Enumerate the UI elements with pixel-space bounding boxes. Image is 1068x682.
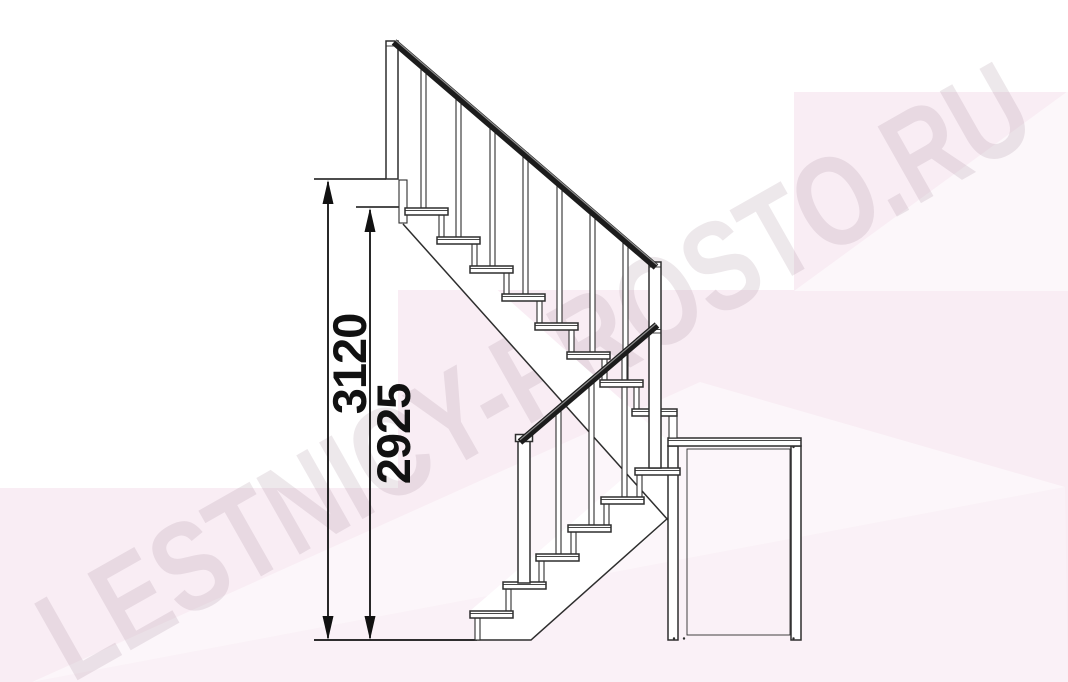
tread: [635, 468, 680, 475]
staircase: [386, 40, 801, 640]
arrow-up-icon: [323, 180, 334, 204]
riser-support: [637, 475, 642, 497]
dimension-2925: 2925: [365, 208, 421, 640]
tread: [567, 352, 610, 359]
staircase-drawing: 3120 2925: [0, 0, 1068, 682]
riser-support: [569, 330, 574, 352]
post-body: [386, 41, 398, 179]
tread: [437, 237, 480, 244]
arrow-down-icon: [323, 616, 334, 640]
box-corner-dot: [683, 637, 685, 639]
tread: [502, 294, 545, 301]
riser-support: [634, 387, 639, 409]
floor-support-board: [399, 180, 407, 223]
post-body: [518, 441, 530, 583]
bottom-newel-post: [516, 435, 533, 584]
riser-support: [537, 301, 542, 323]
dimension-label-2925: 2925: [367, 384, 420, 485]
riser-support: [475, 618, 480, 640]
post-body: [649, 262, 661, 468]
box-corner-dot: [792, 446, 794, 448]
upper-flight-supports: [399, 180, 677, 438]
baluster: [590, 211, 595, 352]
riser-support: [669, 416, 677, 438]
box-top-surface: [668, 438, 801, 446]
baluster: [456, 96, 461, 237]
baluster: [421, 66, 426, 208]
box-corner-dot: [673, 637, 675, 639]
tread: [470, 266, 513, 273]
tread: [536, 554, 579, 561]
tread: [535, 323, 578, 330]
middle-post: [649, 262, 661, 468]
tread: [600, 380, 643, 387]
dimension-lines: 3120 2925: [314, 179, 477, 640]
baluster: [523, 153, 528, 294]
tread: [405, 208, 448, 215]
baluster: [490, 125, 495, 266]
riser-support: [571, 532, 576, 554]
tread: [470, 611, 513, 618]
arrow-down-icon: [365, 616, 376, 640]
box-corner-dot: [792, 637, 794, 639]
riser-support: [504, 272, 509, 294]
baluster: [622, 355, 627, 497]
landing-box: [668, 438, 801, 640]
riser-support: [604, 503, 609, 525]
top-post: [386, 41, 398, 179]
staircase-elevation-page: LESTNICY-PROSTO.RU 3120 2925: [0, 0, 1068, 682]
arrow-up-icon: [365, 208, 376, 232]
riser-support: [506, 589, 511, 611]
riser-support: [539, 560, 544, 582]
baluster: [556, 411, 561, 554]
box-inner-frame: [687, 449, 790, 635]
baluster: [589, 383, 594, 525]
tread: [568, 525, 611, 532]
baluster: [557, 183, 562, 323]
tread: [601, 497, 644, 504]
riser-support: [439, 215, 444, 237]
riser-support: [472, 244, 477, 266]
box-right-leg: [791, 446, 801, 640]
